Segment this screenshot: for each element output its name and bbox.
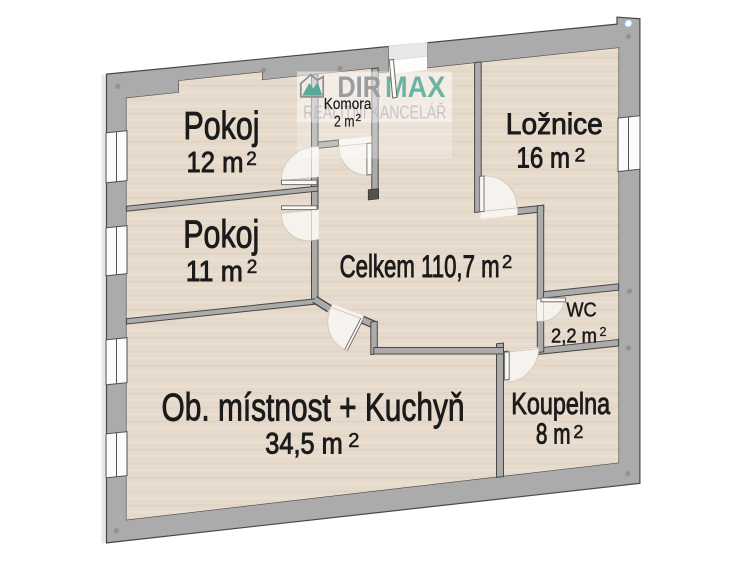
- svg-text:2: 2: [247, 257, 258, 278]
- svg-text:2: 2: [502, 251, 512, 272]
- svg-text:Komora: Komora: [324, 96, 372, 113]
- svg-text:12 m: 12 m: [187, 147, 244, 179]
- svg-text:Koupelna: Koupelna: [511, 387, 610, 421]
- svg-text:2: 2: [575, 144, 586, 166]
- svg-text:11 m: 11 m: [186, 256, 243, 288]
- svg-text:8 m: 8 m: [536, 418, 571, 450]
- svg-text:WC: WC: [566, 300, 596, 322]
- svg-text:Pokoj: Pokoj: [183, 213, 259, 256]
- svg-text:2: 2: [573, 422, 583, 442]
- svg-text:34,5 m: 34,5 m: [265, 428, 343, 461]
- svg-text:Celkem 110,7 m: Celkem 110,7 m: [340, 248, 500, 284]
- svg-text:Ob. místnost + Kuchyň: Ob. místnost + Kuchyň: [162, 387, 465, 430]
- svg-text:2,2 m: 2,2 m: [551, 326, 597, 348]
- svg-text:2: 2: [348, 430, 359, 452]
- svg-text:2: 2: [356, 113, 362, 124]
- svg-text:Ložnice: Ložnice: [506, 108, 603, 141]
- svg-text:2: 2: [600, 325, 607, 339]
- svg-text:16 m: 16 m: [517, 143, 571, 175]
- svg-text:Pokoj: Pokoj: [184, 105, 260, 148]
- svg-text:2: 2: [246, 149, 257, 170]
- svg-text:2 m: 2 m: [334, 113, 355, 130]
